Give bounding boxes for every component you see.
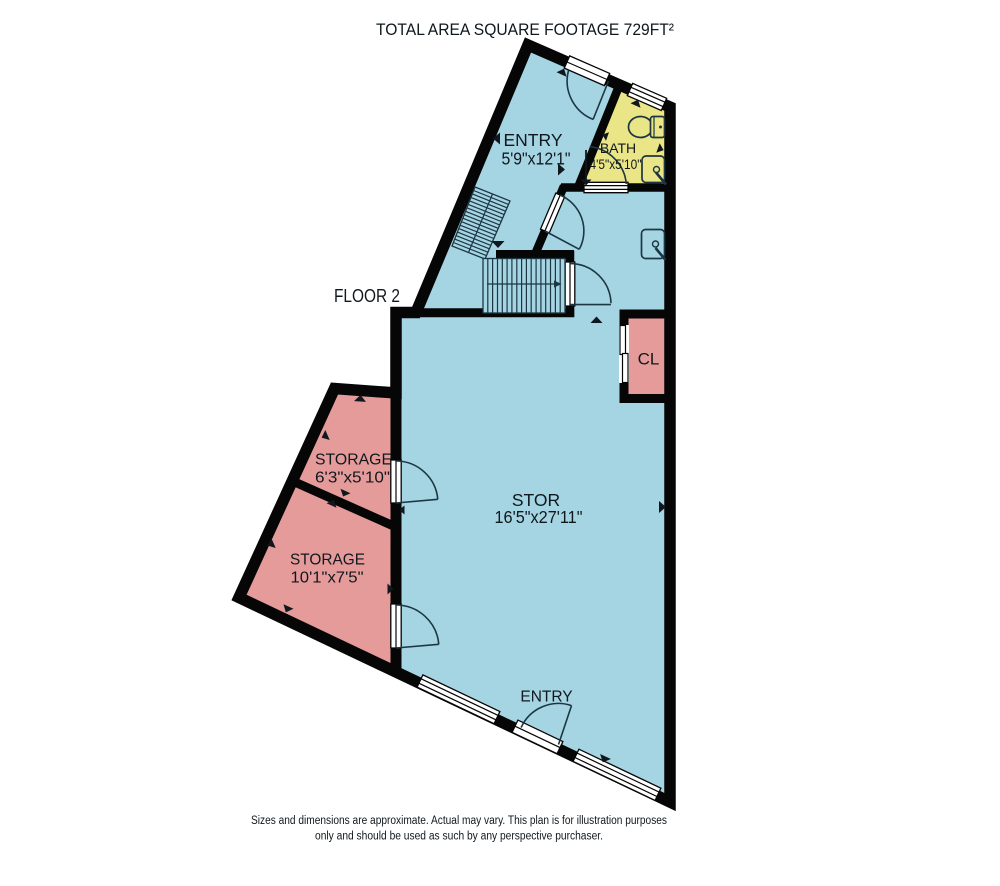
- svg-text:STORAGE: STORAGE: [290, 552, 365, 569]
- svg-text:5'9"x12'1": 5'9"x12'1": [502, 149, 571, 169]
- svg-text:BATH: BATH: [600, 140, 636, 156]
- svg-text:FLOOR 2: FLOOR 2: [334, 286, 400, 306]
- svg-text:10'1"x7'5": 10'1"x7'5": [291, 570, 364, 587]
- svg-text:Sizes and dimensions are appro: Sizes and dimensions are approximate. Ac…: [251, 815, 667, 827]
- svg-text:4'5"x5'10": 4'5"x5'10": [590, 156, 642, 172]
- svg-text:ENTRY: ENTRY: [520, 689, 572, 706]
- svg-text:CL: CL: [638, 350, 660, 369]
- svg-text:6'3"x5'10": 6'3"x5'10": [315, 470, 390, 487]
- svg-text:16'5"x27'11": 16'5"x27'11": [495, 507, 583, 527]
- svg-text:TOTAL AREA SQUARE FOOTAGE 729F: TOTAL AREA SQUARE FOOTAGE 729FT²: [376, 21, 674, 39]
- svg-text:only and should be used as suc: only and should be used as such by any p…: [315, 831, 603, 843]
- svg-text:ENTRY: ENTRY: [504, 130, 563, 150]
- svg-text:STORAGE: STORAGE: [315, 452, 392, 469]
